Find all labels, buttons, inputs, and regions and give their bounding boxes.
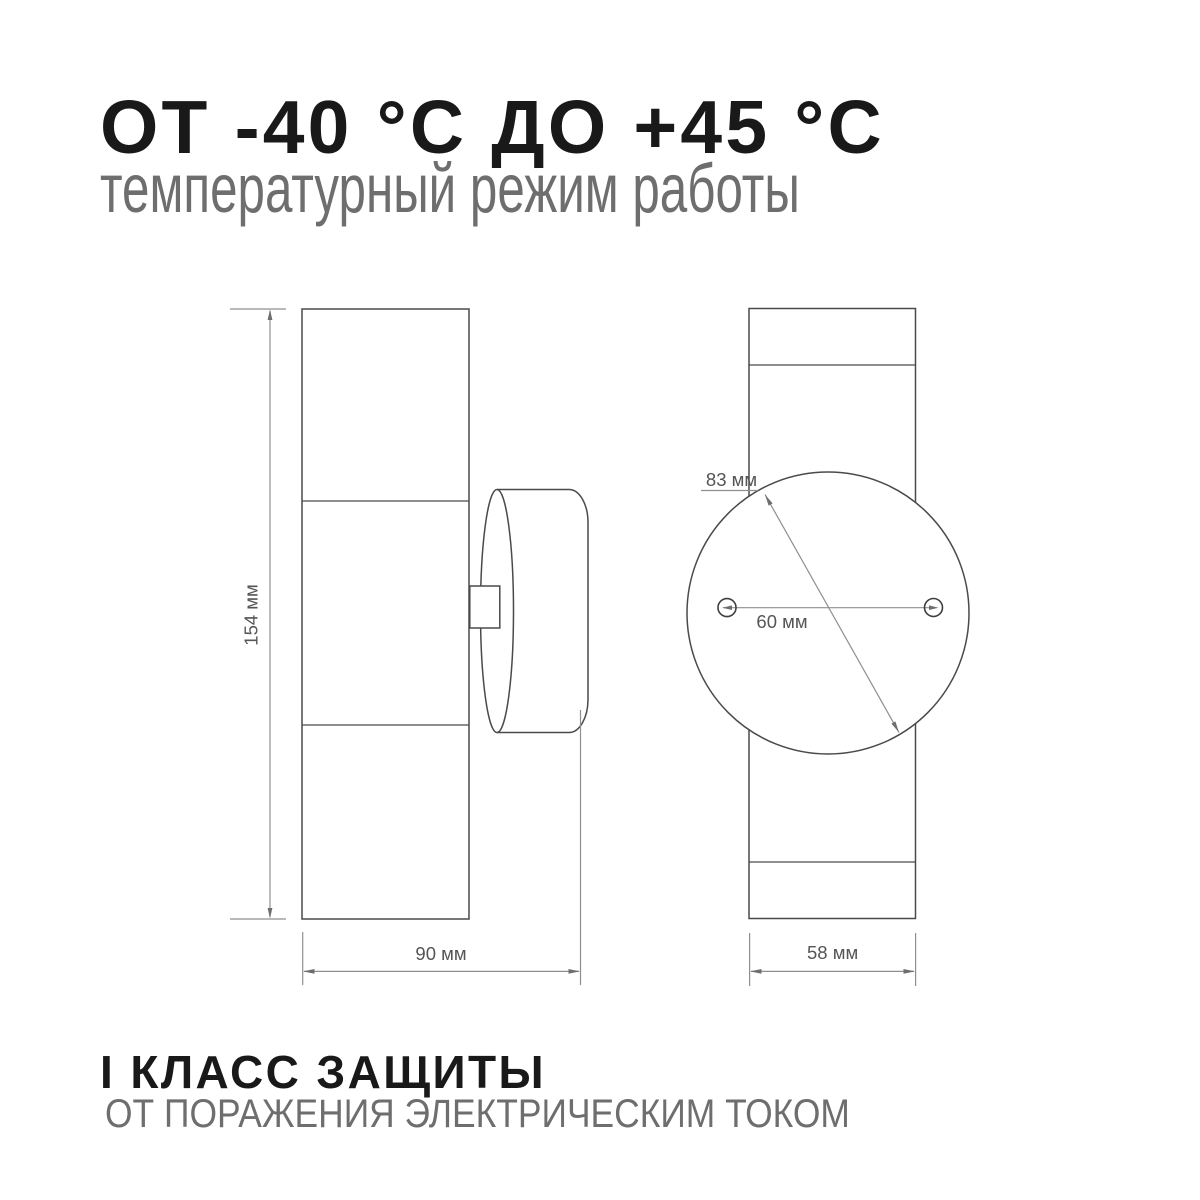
svg-text:60 мм: 60 мм	[756, 611, 807, 632]
svg-text:83 мм: 83 мм	[706, 469, 757, 490]
svg-text:58 мм: 58 мм	[807, 942, 858, 963]
svg-text:154 мм: 154 мм	[241, 584, 262, 645]
svg-text:90 мм: 90 мм	[415, 943, 466, 964]
